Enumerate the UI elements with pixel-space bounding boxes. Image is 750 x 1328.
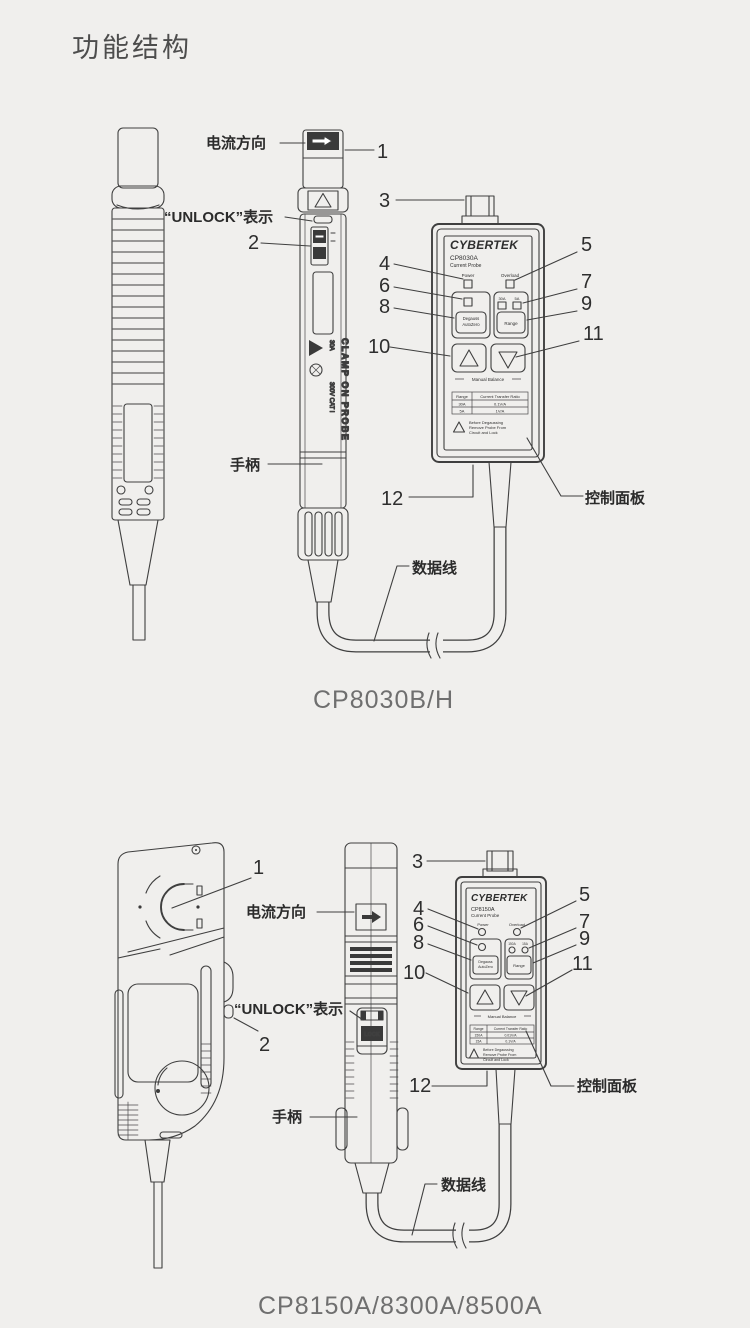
callout-9: 9 (579, 928, 590, 950)
brand-logo: CYBERTEK (471, 893, 528, 904)
callout-9: 9 (581, 293, 592, 315)
range-button-label: Range (513, 963, 526, 968)
label-control-panel: 控制面板 (585, 489, 646, 507)
up-button (470, 985, 500, 1010)
model-text: CP8030A (450, 255, 478, 262)
table-cell: 5A (460, 409, 465, 414)
callout-7: 7 (581, 271, 592, 293)
fig1-control-box: CYBERTEK CP8030A Current Probe Power Ove… (432, 196, 544, 527)
label-control-panel: 控制面板 (577, 1077, 638, 1095)
table-cell: 150A (475, 1034, 484, 1038)
unlock-indicator (314, 216, 332, 223)
degauss-led (479, 944, 486, 951)
fig2-control-box: CYBERTEK CP8150A Current Probe Power Ove… (456, 851, 546, 1124)
fig2-probe-side-view (115, 843, 233, 1268)
range-button-label: Range (504, 321, 518, 326)
callout-2: 2 (248, 232, 259, 254)
probe-rating-text: 30A (328, 340, 334, 351)
label-cable: 数据线 (412, 559, 457, 577)
range-led2 (522, 947, 528, 953)
range-led1-label: 150A (508, 942, 516, 946)
range-led1-label: 30A (498, 296, 505, 301)
callout-10: 10 (368, 336, 390, 358)
callout-8: 8 (379, 296, 390, 318)
warning-triangle-icon (309, 340, 323, 356)
label-current-direction: 电流方向 (246, 903, 306, 921)
table-header-ratio: Current Transfer Ratio (494, 1027, 528, 1031)
fig2-callout-numbers: 1 2 3 4 5 6 7 8 9 10 11 12 (253, 851, 593, 1097)
degauss-button-label2: AutoZero (462, 322, 480, 327)
table-header-range: Range (456, 394, 469, 399)
degauss-button-label2: AutoZero (478, 965, 493, 969)
label-cable: 数据线 (441, 1176, 486, 1194)
figure-cp8150: LOCK CYBERTEK CP8150A Current Probe Powe… (115, 843, 638, 1320)
fig1-probe-side-view (112, 128, 164, 640)
page: 功能结构 (0, 0, 750, 1328)
callout-1: 1 (253, 857, 264, 879)
callout-12: 12 (381, 488, 403, 510)
up-arrow-icon (477, 990, 493, 1004)
table-header-ratio: Current Transfer Ratio (480, 394, 520, 399)
callout-11: 11 (583, 323, 604, 345)
table-cell: 30A (458, 402, 465, 407)
label-current-direction: 电流方向 (206, 134, 266, 152)
range-led1 (509, 947, 515, 953)
degauss-led (464, 298, 472, 306)
overload-label: Overload (509, 922, 525, 927)
trigger-hole (155, 1061, 209, 1115)
fig1-caption: CP8030B/H (313, 686, 454, 714)
strain-relief (496, 1069, 515, 1124)
table-cell: 1V/A (496, 409, 505, 414)
clamp-jaw (161, 884, 184, 930)
page-title: 功能结构 (72, 33, 192, 63)
type-text: Current Probe (471, 913, 500, 918)
fig1-data-cable (323, 527, 500, 661)
probe-category-text: 300V CAT I (328, 382, 334, 413)
callout-8: 8 (413, 932, 424, 954)
bnc-connector (487, 851, 513, 871)
fig2-caption: CP8150A/8300A/8500A (258, 1292, 543, 1320)
fig2-probe-front-view: LOCK (336, 843, 408, 1193)
warning-line2: Remove Probe From (483, 1053, 516, 1057)
overload-led (514, 929, 521, 936)
diagram-canvas: 功能结构 (0, 0, 750, 1328)
strain-relief (489, 462, 511, 527)
up-arrow-icon (460, 350, 478, 366)
lock-slider-label: LOCK (364, 1032, 380, 1038)
callout-6: 6 (379, 275, 390, 297)
manual-balance-label: Manual Balance (472, 377, 505, 382)
fig1-callout-numbers: 1 2 3 4 5 6 7 8 9 10 11 12 (248, 141, 604, 510)
type-text: Current Probe (450, 263, 482, 269)
down-arrow-icon (499, 352, 517, 368)
warning-line1: Before Degaussing (483, 1048, 514, 1052)
callout-5: 5 (581, 234, 592, 256)
table-cell: 0.1V/A (505, 1040, 516, 1044)
power-led (464, 280, 472, 288)
label-unlock: “UNLOCK”表示 (234, 1000, 343, 1018)
lock-slider (311, 227, 335, 265)
warning-line3: Circuit and Lock (483, 1058, 509, 1062)
table-cell: 0.01V/A (504, 1034, 517, 1038)
probe-side-label: CLAMP ON PROBE (340, 338, 350, 441)
up-button (452, 344, 486, 372)
figure-cp8030: 30A 300V CAT I CLAMP ON PROBE CYBER (112, 128, 646, 714)
down-arrow-icon (511, 991, 527, 1005)
lock-slider: LOCK (357, 1008, 387, 1054)
range-led2 (513, 302, 521, 309)
power-label: Power (477, 922, 489, 927)
range-led2-label: 5A (515, 296, 520, 301)
overload-led (506, 280, 514, 288)
power-led (479, 929, 486, 936)
callout-4: 4 (379, 253, 390, 275)
range-led1 (498, 302, 506, 309)
bnc-connector (466, 196, 494, 216)
label-handle: 手柄 (230, 456, 260, 474)
warning-triangle-icon (454, 422, 465, 432)
unlock-button (224, 1005, 233, 1018)
callout-3: 3 (412, 851, 423, 873)
warning-line3: Circuit and Lock (469, 430, 498, 435)
degauss-button-label1: Degauss (463, 316, 480, 321)
fig1-probe-front-view: 30A 300V CAT I CLAMP ON PROBE (298, 130, 350, 602)
table-cell: 0.1V/A (494, 402, 506, 407)
down-button (504, 985, 534, 1010)
manual-balance-label: Manual Balance (488, 1014, 517, 1019)
degauss-button-label1: Degauss (478, 960, 492, 964)
table-header-range: Range (474, 1027, 484, 1031)
range-led2-label: 15A (522, 942, 529, 946)
callout-5: 5 (579, 884, 590, 906)
callout-1: 1 (377, 141, 388, 163)
warning-triangle-icon (470, 1049, 479, 1058)
callout-12: 12 (409, 1075, 431, 1097)
callout-3: 3 (379, 190, 390, 212)
label-unlock: “UNLOCK”表示 (164, 208, 273, 226)
callout-11: 11 (572, 953, 593, 975)
overload-label: Overload (501, 273, 520, 278)
current-direction-arrow-icon (362, 911, 381, 923)
brand-logo: CYBERTEK (450, 238, 519, 252)
label-handle: 手柄 (272, 1108, 302, 1126)
power-label: Power (462, 273, 475, 278)
callout-10: 10 (403, 962, 425, 984)
callout-2: 2 (259, 1034, 270, 1056)
table-cell: 15A (475, 1040, 482, 1044)
